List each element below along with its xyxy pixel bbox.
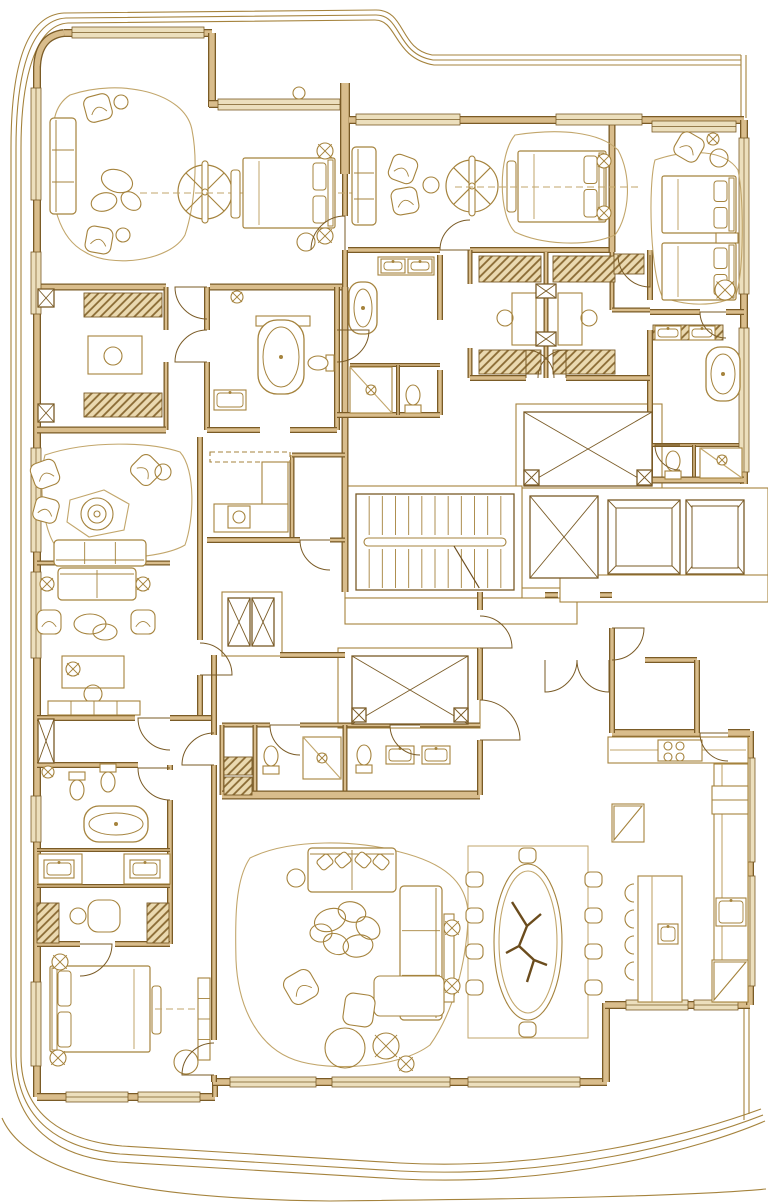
- toilet: [264, 746, 278, 766]
- armchair: [37, 610, 61, 634]
- toilet: [308, 356, 328, 370]
- pantry-sink-box: [228, 506, 250, 528]
- wardrobe-hatch: [224, 777, 252, 795]
- wardrobe-hatch: [224, 757, 252, 775]
- sink: [701, 327, 704, 330]
- bathtub: [279, 355, 283, 359]
- floor-plan-page: [0, 0, 768, 1202]
- bed-bench: [152, 986, 161, 1034]
- toilet: [405, 405, 421, 413]
- bathtub: [361, 306, 365, 310]
- dining-chair: [585, 980, 602, 995]
- bed-bench: [231, 170, 240, 218]
- toilet: [100, 764, 116, 772]
- dining-chair: [466, 872, 483, 887]
- bathtub: [114, 822, 118, 826]
- sink: [229, 391, 232, 394]
- kitchen-sink: [730, 899, 733, 902]
- dining-chair: [519, 1022, 536, 1037]
- toilet: [357, 745, 371, 765]
- dining-chair: [585, 944, 602, 959]
- twin-bed: [662, 176, 736, 233]
- ceiling-fan: [469, 183, 475, 189]
- sofa: [352, 147, 376, 225]
- toilet: [356, 765, 372, 773]
- toilet: [666, 451, 680, 471]
- dresser: [558, 293, 582, 345]
- upper-cabinet-dashed: [210, 452, 290, 462]
- wardrobe-hatch: [37, 903, 59, 943]
- elevator-car: [616, 508, 672, 566]
- bed: [243, 158, 335, 228]
- sink: [58, 861, 61, 864]
- dining-chair: [585, 872, 602, 887]
- nightstand: [716, 233, 738, 243]
- armchair: [390, 186, 420, 216]
- wardrobe-hatch: [84, 293, 162, 317]
- sofa: [50, 118, 76, 214]
- toilet: [101, 772, 115, 792]
- sink: [435, 747, 438, 750]
- dining-chair: [466, 980, 483, 995]
- toilet: [665, 471, 681, 479]
- vanity-desk: [88, 336, 142, 374]
- armchair: [84, 225, 114, 255]
- pantry-counter: [214, 504, 288, 532]
- kitchen-sink: [716, 898, 746, 926]
- toilet: [263, 766, 279, 774]
- dining-chair: [466, 944, 483, 959]
- dining-chair: [585, 908, 602, 923]
- closet-ottoman: [88, 900, 120, 932]
- wardrobe-hatch: [553, 350, 615, 374]
- dining-chair: [519, 848, 536, 863]
- wardrobe-hatch: [553, 256, 615, 282]
- wardrobe-hatch: [479, 350, 541, 374]
- sink: [144, 861, 147, 864]
- island-sink: [667, 925, 670, 928]
- chaise: [374, 976, 444, 1016]
- wardrobe-hatch: [147, 903, 169, 943]
- toilet: [406, 385, 420, 405]
- wardrobe-hatch: [84, 393, 162, 417]
- dining-chair: [466, 908, 483, 923]
- bed: [50, 966, 150, 1052]
- bidet: [70, 780, 84, 800]
- sink: [419, 260, 422, 263]
- floor-plan: [0, 0, 768, 1202]
- wardrobe-hatch: [479, 256, 541, 282]
- dining-rug: [468, 846, 588, 1038]
- bidet: [69, 772, 85, 780]
- ottoman: [342, 992, 376, 1028]
- armchair: [131, 610, 155, 634]
- sofa: [54, 540, 146, 566]
- sink: [392, 260, 395, 263]
- bathtub: [721, 372, 725, 376]
- core-wall-fill: [560, 575, 768, 602]
- dresser: [512, 293, 536, 345]
- sink: [667, 327, 670, 330]
- core-wall-fill: [345, 598, 577, 624]
- ceiling-fan: [202, 189, 208, 195]
- stairwell: [364, 538, 506, 546]
- elevator-car: [692, 506, 738, 568]
